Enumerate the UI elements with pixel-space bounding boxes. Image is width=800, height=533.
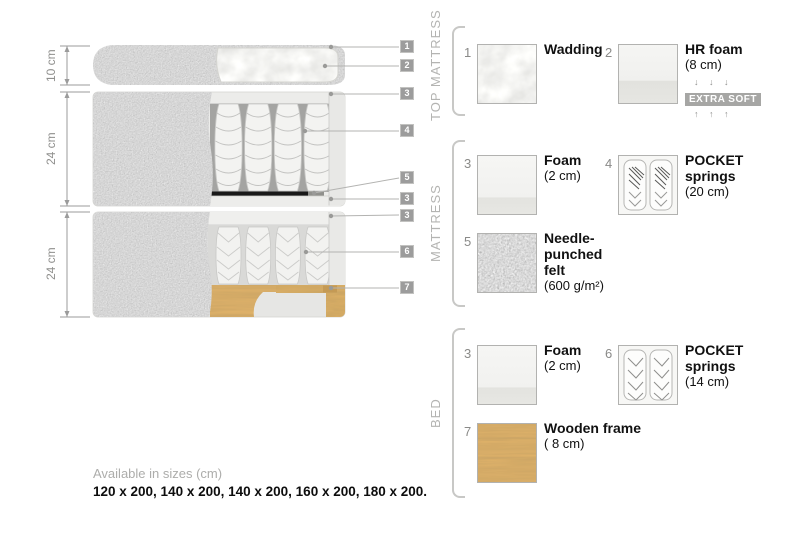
callout-chip: 3 xyxy=(400,87,414,100)
needle-felt-layer xyxy=(210,192,308,197)
callout-chip: 4 xyxy=(400,124,414,137)
foam-swatch-icon xyxy=(477,155,537,215)
mattress-pocket-spring xyxy=(274,104,301,191)
legend-item-number: 3 xyxy=(464,156,471,171)
callout-chip: 3 xyxy=(400,192,414,205)
material-name: POCKET springs xyxy=(685,342,763,374)
material-name: HR foam xyxy=(685,41,763,57)
mattress-fabric xyxy=(93,92,213,206)
mattress-pocket-spring xyxy=(215,104,242,191)
material-name: Wooden frame xyxy=(544,420,694,436)
legend-item-number: 2 xyxy=(605,45,612,60)
section-title-bed: BED xyxy=(428,388,446,438)
legend-item-label: POCKET springs (20 cm) xyxy=(685,152,763,200)
wadding-swatch-icon xyxy=(477,44,537,104)
bed-pocket-spring xyxy=(216,227,241,284)
foam-swatch-icon xyxy=(477,345,537,405)
bed-pocket-spring xyxy=(275,227,300,284)
legend-item-label: Needle-punched felt (600 g/m²) xyxy=(544,230,626,294)
mattress-infographic: 1 2 3 4 5 3 3 6 7 10 cm 24 cm 24 cm TOP … xyxy=(0,0,800,533)
bed-pocket-spring xyxy=(305,227,330,284)
legend-item-wooden-frame: 7 Wooden frame ( 8 cm) xyxy=(464,423,644,503)
bed-fabric xyxy=(93,212,212,317)
material-detail: ( 8 cm) xyxy=(544,436,694,452)
arrows-down: ↓ ↓ ↓ xyxy=(694,77,763,87)
legend-item-label: POCKET springs (14 cm) xyxy=(685,342,763,390)
legend-item-number: 6 xyxy=(605,346,612,361)
material-name: POCKET springs xyxy=(685,152,763,184)
callout-chip: 2 xyxy=(400,59,414,72)
dimension-label-bed: 24 cm xyxy=(44,234,60,294)
legend-item-felt: 5 Needle-punched felt (600 g/m²) xyxy=(464,233,644,313)
bed-cross-section-diagram xyxy=(0,0,430,330)
wood-swatch-icon xyxy=(477,423,537,483)
callout-chip: 5 xyxy=(400,171,414,184)
legend-item-label: HR foam (8 cm) ↓ ↓ ↓ EXTRA SOFT ↑ ↑ ↑ xyxy=(685,41,763,119)
bed-section xyxy=(93,212,345,317)
mattress-pocket-spring xyxy=(245,104,272,191)
material-detail: (600 g/m²) xyxy=(544,278,626,294)
felt-swatch-icon xyxy=(477,233,537,293)
callout-chip: 1 xyxy=(400,40,414,53)
extra-soft-badge: EXTRA SOFT xyxy=(685,93,761,106)
wooden-frame-leg xyxy=(326,293,345,317)
arrows-up: ↑ ↑ ↑ xyxy=(694,109,763,119)
hr-foam-swatch-icon xyxy=(618,44,678,104)
available-sizes-list: 120 x 200, 140 x 200, 140 x 200, 160 x 2… xyxy=(93,484,427,499)
material-detail: (14 cm) xyxy=(685,374,763,390)
bed-pocket-spring xyxy=(246,227,271,284)
pocket-springs-swatch-icon xyxy=(618,345,678,405)
callout-chip: 6 xyxy=(400,245,414,258)
legend-item-number: 4 xyxy=(605,156,612,171)
callout-chip: 7 xyxy=(400,281,414,294)
legend-item-number: 5 xyxy=(464,234,471,249)
wadding-layer xyxy=(217,48,338,82)
mattress-section xyxy=(93,92,345,206)
callout-chip: 3 xyxy=(400,209,414,222)
legend-item-label: Wooden frame ( 8 cm) xyxy=(544,420,694,452)
legend-item-pocket-springs-bed: 6 POCKET springs (14 cm) xyxy=(605,345,785,425)
available-sizes-caption: Available in sizes (cm) xyxy=(93,466,222,481)
material-name: Needle-punched felt xyxy=(544,230,626,278)
dimension-label-mattress: 24 cm xyxy=(44,119,60,179)
mattress-bottom-foam xyxy=(210,196,345,206)
mattress-pocket-spring xyxy=(304,104,331,191)
legend-item-number: 7 xyxy=(464,424,471,439)
section-title-mattress: MATTRESS xyxy=(428,178,446,268)
legend-item-pocket-springs: 4 POCKET springs (20 cm) xyxy=(605,155,785,235)
dimension-label-top-mattress: 10 cm xyxy=(44,46,60,85)
legend-item-number: 1 xyxy=(464,45,471,60)
legend-item-hr-foam: 2 HR foam (8 cm) ↓ ↓ ↓ EXTRA SOFT ↑ ↑ ↑ xyxy=(605,44,785,124)
section-title-top-mattress: TOP MATTRESS xyxy=(428,21,446,121)
material-detail: (20 cm) xyxy=(685,184,763,200)
material-detail: (8 cm) xyxy=(685,57,763,73)
pocket-springs-swatch-icon xyxy=(618,155,678,215)
dimension-lines xyxy=(60,46,90,317)
legend-item-number: 3 xyxy=(464,346,471,361)
top-mattress-section xyxy=(93,45,345,85)
